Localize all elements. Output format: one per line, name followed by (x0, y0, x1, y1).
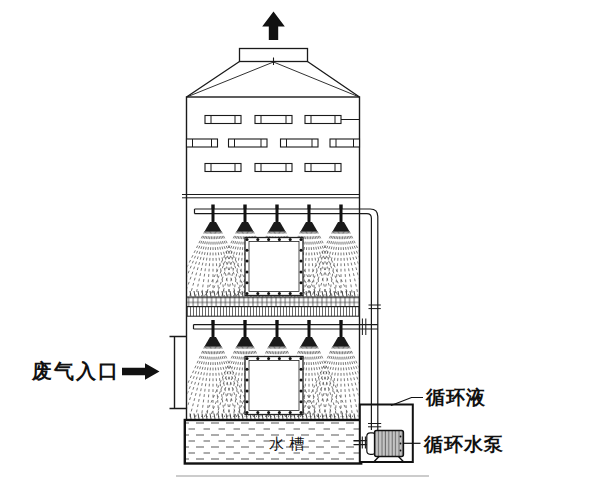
circulating-pump-label: 循环水泵 (423, 433, 504, 455)
packing-bed (187, 297, 360, 316)
water-tank-label: 水槽 (269, 435, 309, 453)
diagram-canvas: 水槽 废气入口 循环液 循环水泵 (0, 0, 600, 484)
inlet-label: 废气入口 (31, 359, 120, 383)
inlet-duct (170, 337, 188, 409)
pump-motor (375, 431, 404, 457)
outlet-arrow-icon (262, 12, 285, 41)
circulating-liquid-label: 循环液 (425, 386, 486, 408)
pump-assembly (354, 405, 413, 463)
scrubber-diagram: 水槽 废气入口 循环液 循环水泵 (0, 0, 600, 484)
exhaust-hood (187, 49, 360, 98)
water-tank: 水槽 (185, 420, 361, 464)
inlet-arrow-icon (122, 363, 160, 380)
